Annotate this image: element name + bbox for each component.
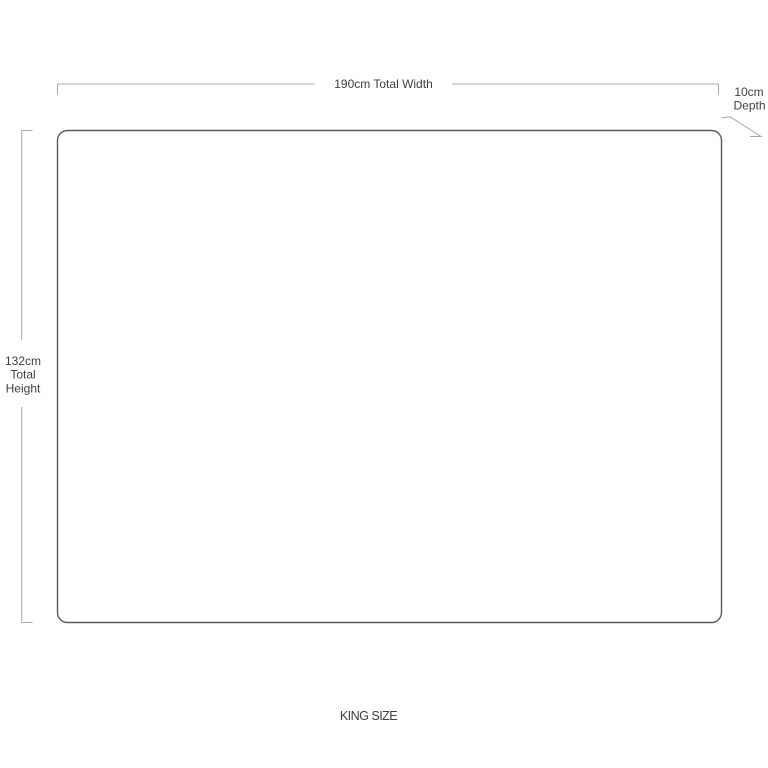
svg-text:10cm: 10cm: [734, 85, 763, 99]
svg-text:Height: Height: [6, 382, 41, 396]
svg-text:132cm: 132cm: [5, 354, 41, 368]
svg-text:190cm Total Width: 190cm Total Width: [334, 77, 433, 91]
svg-text:Depth: Depth: [733, 99, 765, 113]
svg-text:Total: Total: [10, 368, 35, 382]
svg-text:KING SIZE: KING SIZE: [340, 709, 397, 723]
